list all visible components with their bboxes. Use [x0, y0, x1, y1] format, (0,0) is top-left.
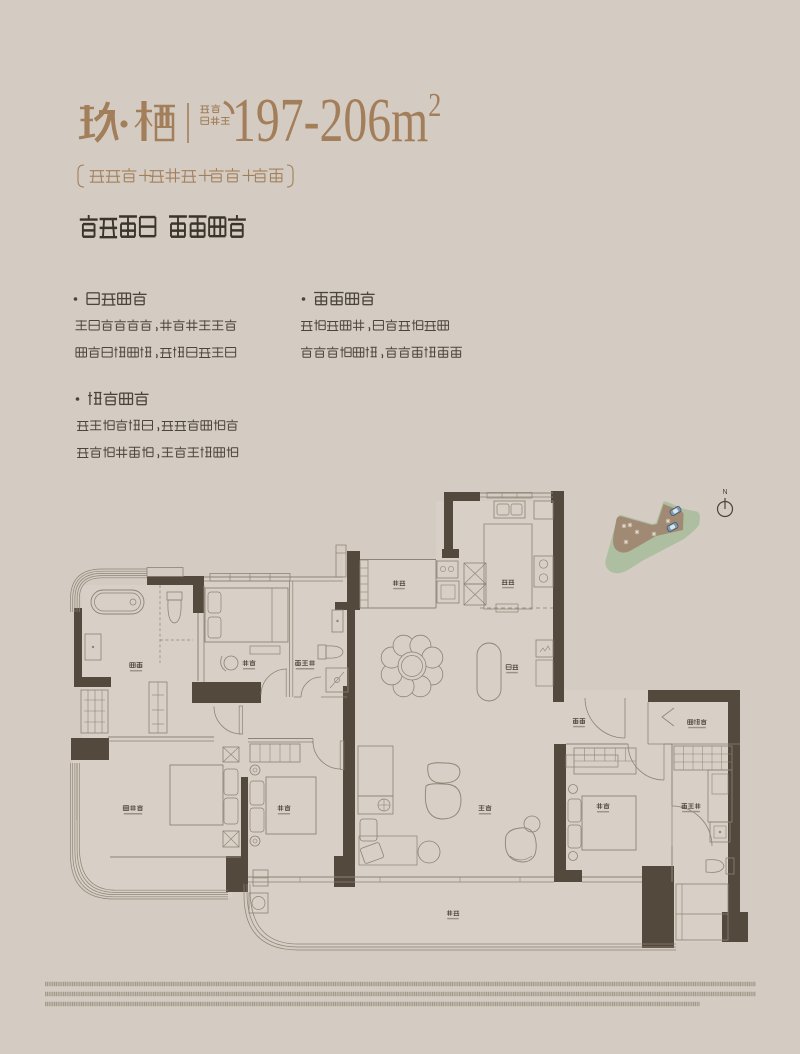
- svg-text:N: N: [722, 489, 727, 496]
- svg-text:197-206m2: 197-206m2: [232, 86, 441, 155]
